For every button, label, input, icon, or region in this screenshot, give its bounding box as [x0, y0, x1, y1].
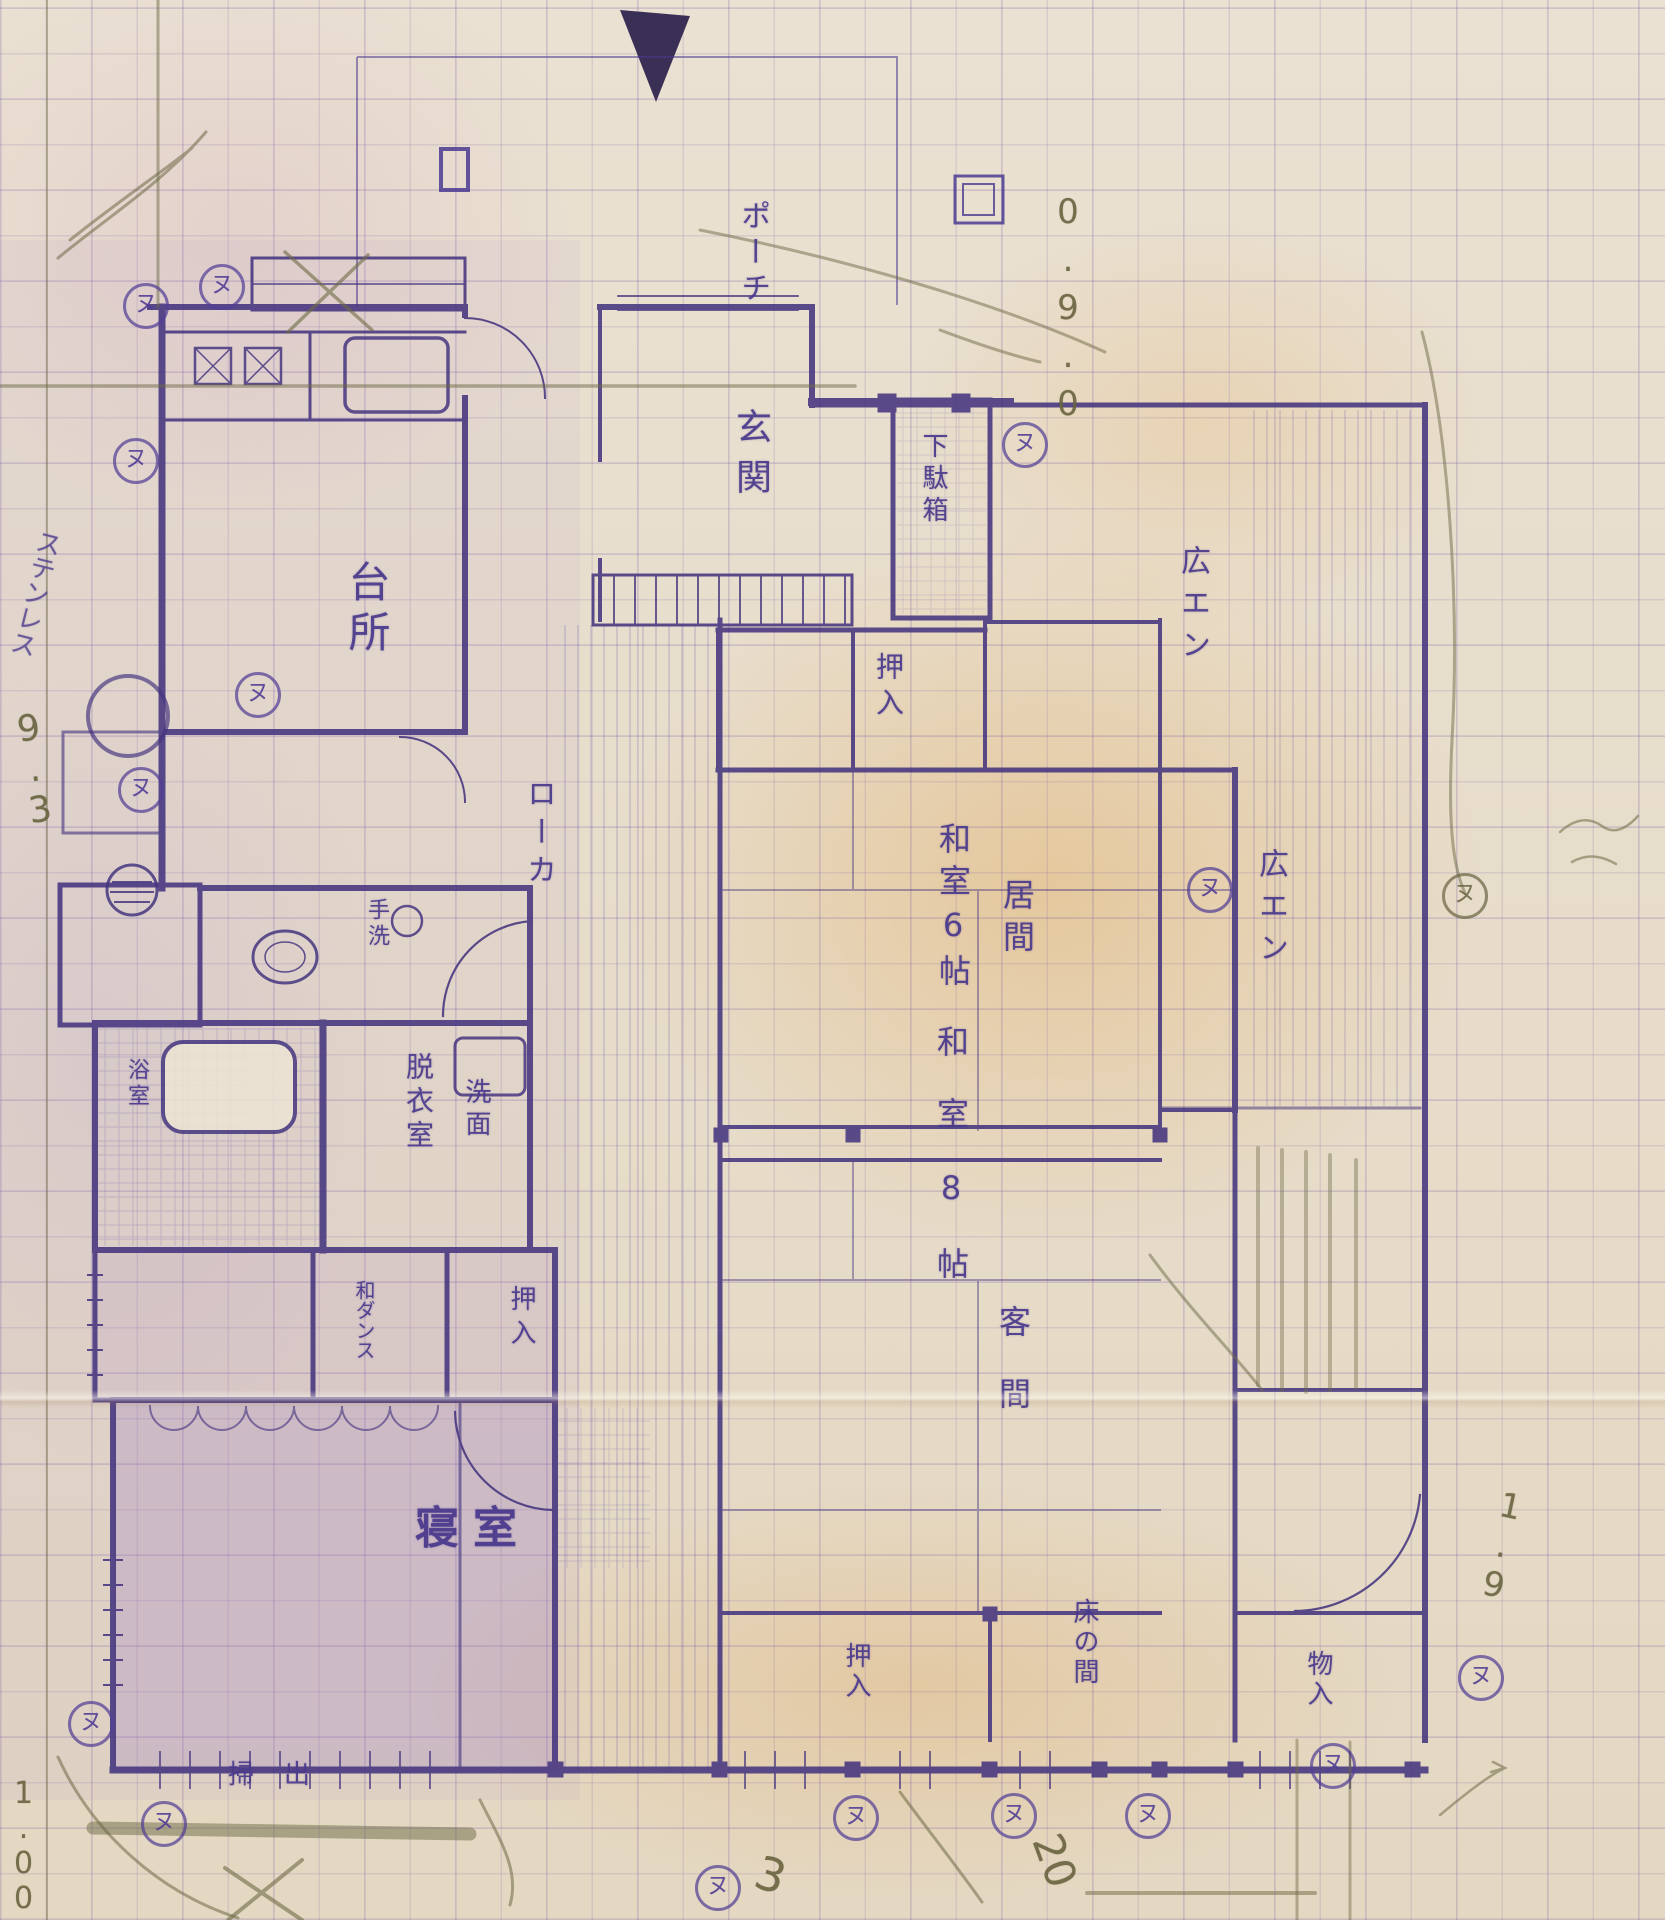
- circled-nu-marker: ヌ: [235, 672, 281, 718]
- room-label-storage: 物入: [1300, 1650, 1337, 1710]
- kitchen-sink-icon: [345, 338, 448, 412]
- east-wing-door-arc: [1295, 1495, 1420, 1611]
- vent-fan-icon: [107, 865, 157, 915]
- pencil-scribble-right: [1560, 816, 1638, 864]
- circled-nu-marker: ヌ: [1002, 422, 1048, 468]
- room-label-closet-north: 押入: [868, 652, 908, 724]
- room-label-porch: ポーチ: [730, 200, 774, 308]
- room-label-dressing: 脱衣室: [398, 1052, 438, 1154]
- room-label-bath: 浴室: [120, 1058, 152, 1110]
- circled-nu-marker: ヌ: [68, 1701, 114, 1747]
- corridor-floorboards: [560, 625, 718, 1770]
- label-sweep-window: 掃出: [228, 1754, 340, 1791]
- room-label-tokonoma: 床の間: [1066, 1598, 1103, 1688]
- room-label-closet-tokonoma: 押入: [838, 1642, 875, 1702]
- room-label-living: 居間: [994, 878, 1040, 962]
- toilet-icon: [253, 931, 317, 983]
- room-label-tatami8: 和室8帖: [928, 1025, 974, 1319]
- pencil-arrow: [1440, 1762, 1505, 1815]
- circled-nu-marker: ヌ: [199, 264, 245, 310]
- room-label-washstand: 洗面: [458, 1078, 495, 1142]
- pencil-note-100: 1.00: [6, 1776, 41, 1916]
- kitchen-counter: [162, 332, 465, 420]
- tatami6-joints: [720, 770, 1235, 1130]
- utility-alcove: [60, 885, 200, 1025]
- bedroom-sliding-door-scallops: [150, 1406, 438, 1430]
- circled-nu-marker: ヌ: [141, 1801, 187, 1847]
- room-label-veranda-north: 広エン: [1170, 545, 1214, 671]
- bathtub-icon: [163, 1042, 295, 1132]
- pencil-scribble-top-left: [58, 132, 206, 258]
- circled-nu-marker: ヌ: [1310, 1743, 1356, 1789]
- circled-nu-marker: ヌ: [123, 283, 169, 329]
- pencil-shading-streaks: [1258, 1148, 1356, 1392]
- room-label-shoe-cabinet: 下駄箱: [915, 432, 952, 528]
- room-label-entrance: 玄関: [724, 408, 776, 508]
- room-label-kitchen: 台所: [336, 560, 397, 660]
- circled-nu-marker: ヌ: [833, 1795, 879, 1841]
- hall-door-arc: [400, 737, 465, 802]
- porch-outline: [357, 57, 1003, 307]
- room-label-tatami6: 和室6帖: [930, 822, 976, 996]
- room-label-closet-mid: 押入: [503, 1285, 540, 1353]
- corridor-south-tile: [558, 1408, 650, 1568]
- room-label-hand-wash: 手洗: [360, 898, 392, 950]
- circled-nu-marker-pencil: ヌ: [1442, 873, 1488, 919]
- east-veranda-floorboards: [1250, 410, 1418, 1106]
- pencil-x-mark: [285, 252, 372, 332]
- circled-nu-marker: ヌ: [1125, 1793, 1171, 1839]
- circled-nu-marker: ヌ: [1458, 1655, 1504, 1701]
- circled-nu-marker: ヌ: [113, 438, 159, 484]
- porch-post-left: [441, 149, 468, 190]
- room-label-guest: 客間: [990, 1305, 1036, 1449]
- pencil-note-090: 0.9.0: [1048, 192, 1088, 432]
- room-label-bedroom: 寝室: [415, 1492, 531, 1556]
- ink-circle-mark: [88, 676, 168, 756]
- pencil-x-bottom: [225, 1860, 302, 1920]
- wc-door-arc: [443, 921, 532, 1016]
- circled-nu-marker: ヌ: [118, 767, 164, 813]
- paper-fold-crease: [0, 1390, 1665, 1408]
- room-label-corridor: ローカ: [516, 778, 560, 892]
- circled-nu-marker: ヌ: [695, 1865, 741, 1911]
- floor-plan-scan: 台所 ポーチ 玄関 下駄箱 押入 和室6帖 居間 和室8帖 客間 広エン 広エン…: [0, 0, 1665, 1920]
- room-label-veranda-east: 広エン: [1248, 848, 1292, 974]
- room-label-wardrobe: 和ダンス: [350, 1280, 379, 1360]
- circled-nu-marker: ヌ: [1187, 867, 1233, 913]
- plan-drawing: [0, 0, 1665, 1920]
- hand-wash-basin-icon: [392, 906, 422, 936]
- circled-nu-marker: ヌ: [991, 1793, 1037, 1839]
